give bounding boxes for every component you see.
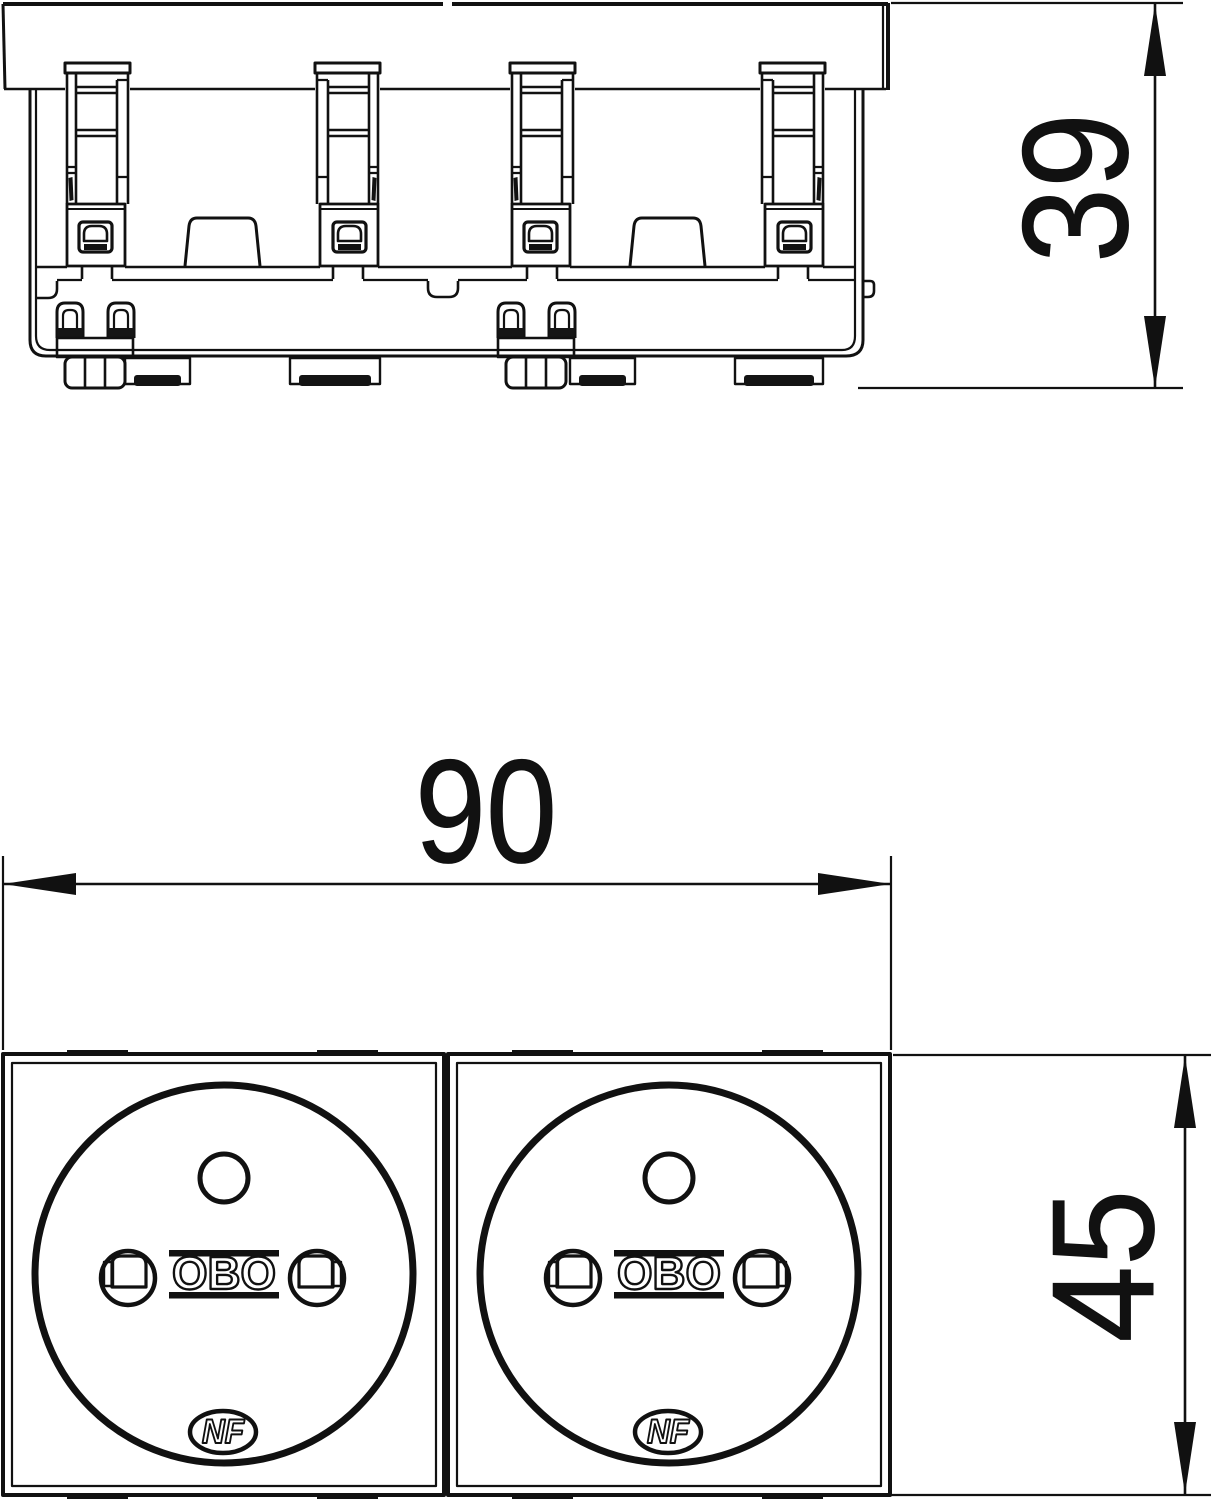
neutral-pin-hole [735,1251,789,1305]
claw-tower-2 [315,63,380,279]
front-view-drawing: OBO NF OBO NF [3,1050,890,1499]
dimension-height-value: 45 [1022,1190,1184,1343]
dimension-height: 45 [891,1055,1211,1495]
arrowhead-left [3,873,76,895]
side-view-drawing [3,3,888,388]
socket-module-right: OBO NF [448,1054,890,1495]
neutral-pin-hole [290,1251,344,1305]
dimension-width: 90 [3,730,891,1050]
claw-tower-3 [510,63,575,279]
dimension-width-value: 90 [415,730,557,894]
earth-pin-hole [645,1154,693,1202]
left-step-detail [36,281,57,298]
nf-mark: NF [190,1411,256,1453]
dimension-depth: 39 [858,3,1183,388]
arrowhead-bottom [1174,1422,1196,1494]
terminal-cluster-left [57,303,134,388]
line-pin-hole [546,1251,600,1305]
arrowhead-bottom [1144,316,1166,388]
arrowhead-top [1174,1056,1196,1128]
socket-module-left: OBO NF [3,1054,444,1495]
dimension-drawing-canvas: OBO NF OBO NF [0,0,1214,1500]
earth-pin-hole [200,1154,248,1202]
nf-mark-text: NF [647,1413,690,1451]
contact-trays [125,358,823,386]
claw-tower-1 [65,63,130,279]
side-view-housing-body [30,90,874,356]
line-pin-hole [101,1251,155,1305]
mounting-claw-towers [65,63,825,279]
obo-logo: OBO [614,1247,724,1299]
side-view-top-plate [3,3,888,90]
arrowhead-right [818,873,891,895]
center-latch-tab [428,281,458,297]
terminal-cluster-center [498,303,575,388]
guide-bumps [185,218,705,266]
claw-tower-4 [760,63,825,279]
right-step-detail [863,281,874,297]
dimension-depth-value: 39 [991,113,1159,263]
nf-mark: NF [635,1411,701,1453]
obo-logo-text: OBO [172,1247,276,1299]
arrowhead-top [1144,4,1166,76]
obo-logo: OBO [169,1247,279,1299]
obo-logo-text: OBO [617,1247,721,1299]
nf-mark-text: NF [202,1413,245,1451]
drawing-page: OBO NF OBO NF [0,0,1214,1500]
